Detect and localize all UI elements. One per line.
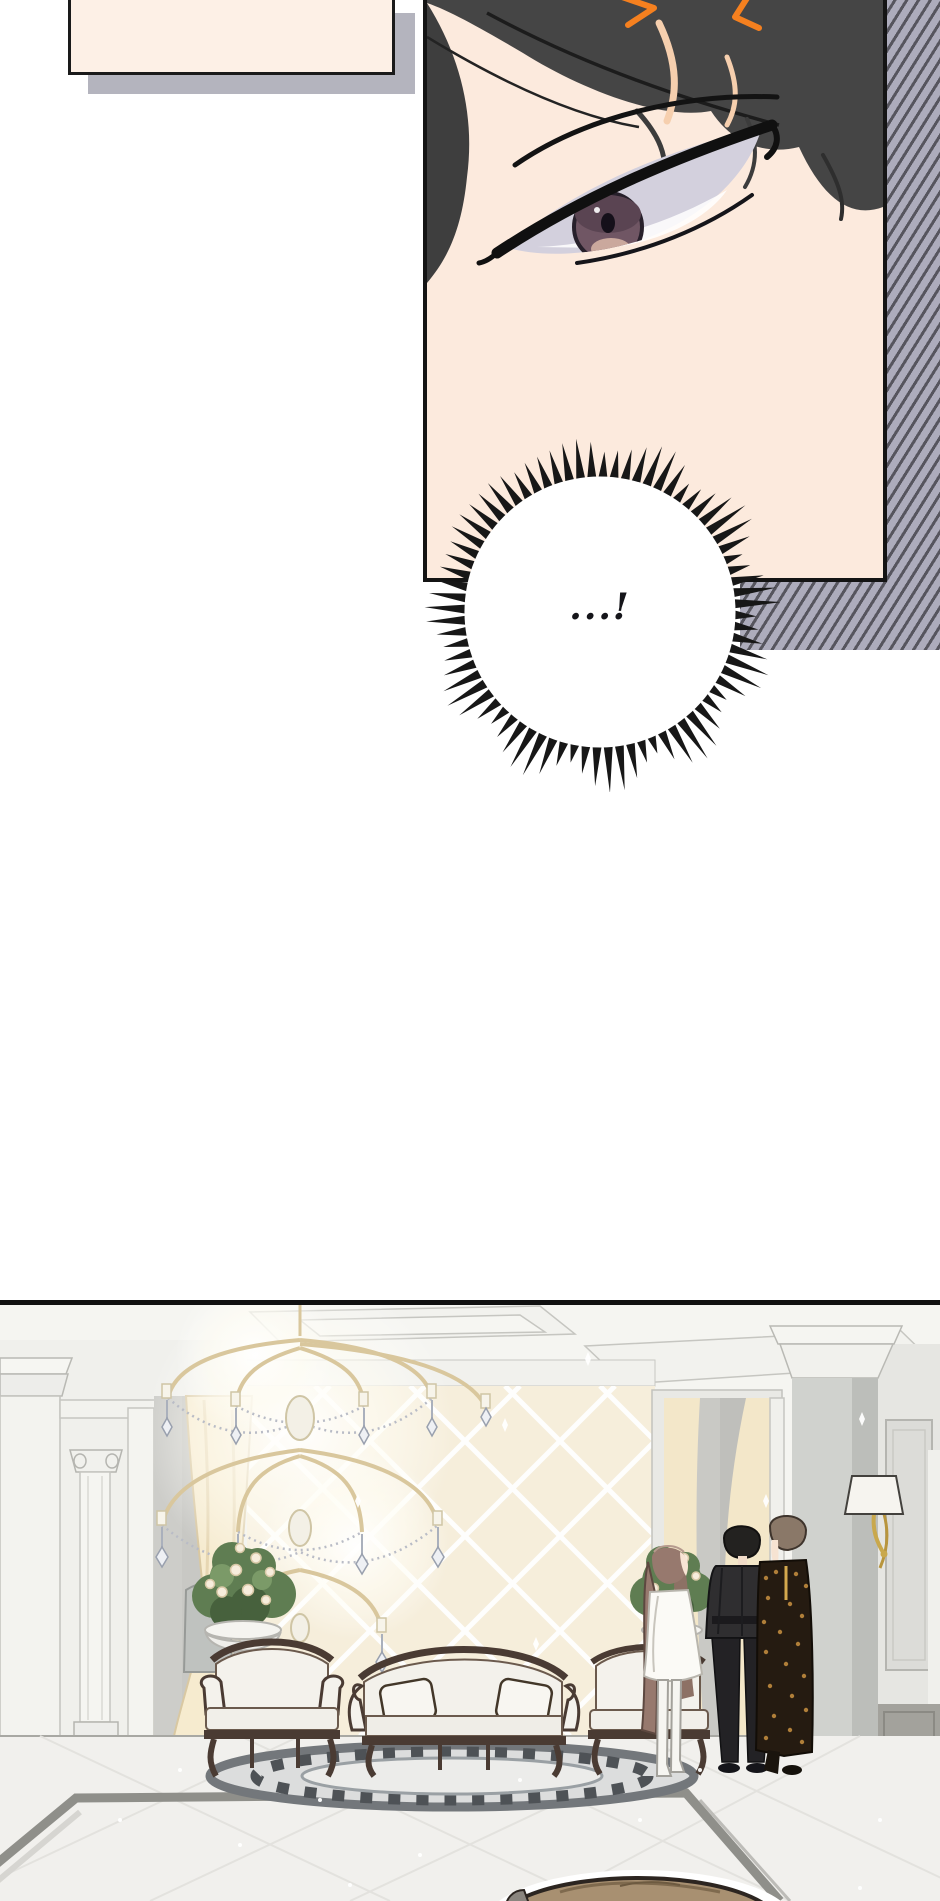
hall-scene-panel — [0, 1300, 940, 1901]
speech-box — [68, 0, 395, 75]
scene-top-border — [0, 1300, 940, 1305]
burst-bubble-text: ...! — [520, 586, 680, 628]
rug — [210, 1745, 694, 1807]
webtoon-page: ...! — [0, 0, 940, 1901]
